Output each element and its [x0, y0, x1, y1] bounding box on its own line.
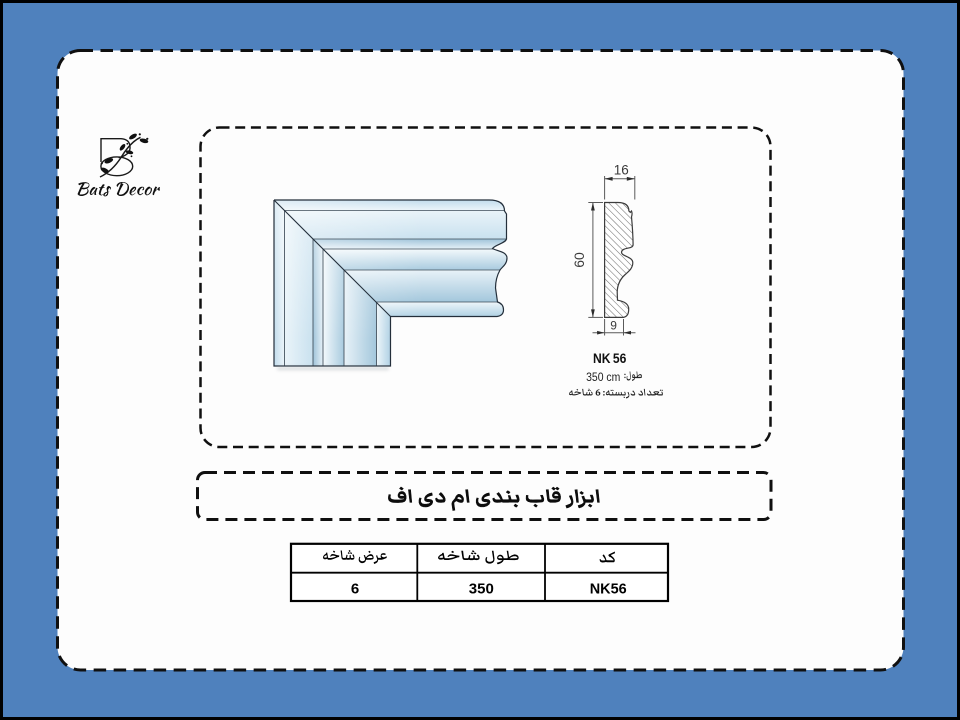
- svg-text:9: 9: [610, 319, 617, 333]
- svg-text:NK56: NK56: [590, 581, 627, 597]
- svg-text:350 cm: 350 cm: [586, 370, 620, 384]
- svg-text:350: 350: [469, 580, 494, 597]
- svg-text:60: 60: [571, 252, 587, 268]
- svg-text:6: 6: [351, 580, 359, 597]
- svg-text:NK 56: NK 56: [593, 351, 627, 366]
- svg-text:16: 16: [614, 163, 629, 178]
